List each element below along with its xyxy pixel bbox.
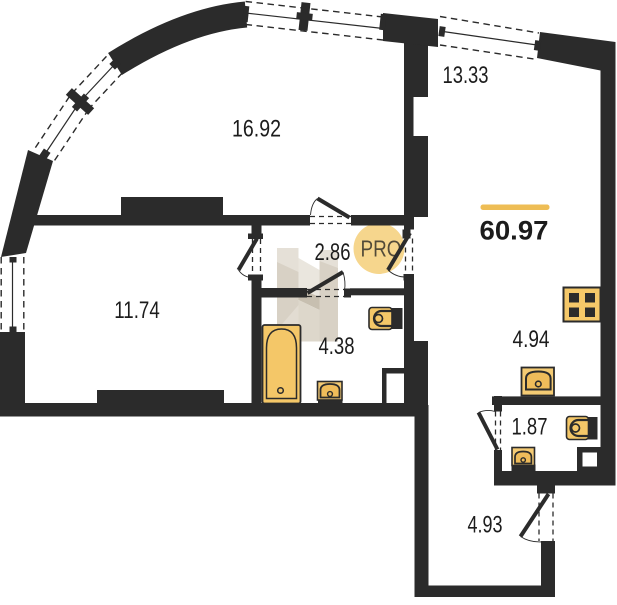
svg-text:13.33: 13.33 (443, 62, 489, 89)
svg-text:4.93: 4.93 (468, 512, 503, 539)
svg-text:4.94: 4.94 (513, 326, 550, 353)
svg-text:16.92: 16.92 (232, 116, 281, 143)
svg-text:11.74: 11.74 (114, 297, 160, 324)
svg-text:1.87: 1.87 (512, 414, 548, 441)
svg-text:60.97: 60.97 (480, 216, 549, 246)
svg-text:2.86: 2.86 (315, 239, 351, 266)
svg-text:4.38: 4.38 (319, 333, 355, 360)
